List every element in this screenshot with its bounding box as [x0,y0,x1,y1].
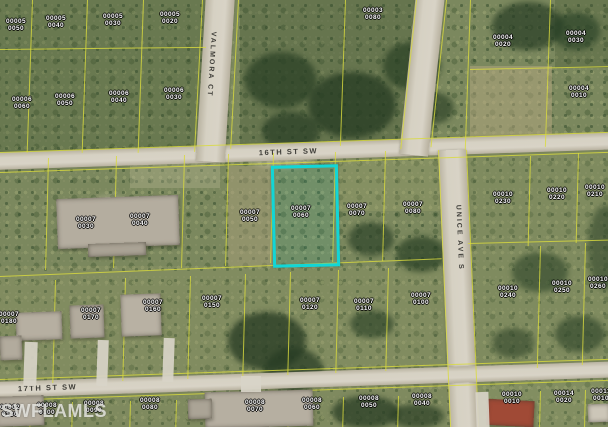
house-roof [588,404,608,423]
house-roof [0,336,22,361]
parcel-label-00014-0020: 000140020 [554,390,574,404]
parcel-label-00010-0240: 000100240 [498,285,518,299]
house-roof [88,242,146,257]
parcel-label-00007-0070: 000070070 [347,203,367,217]
parcel-label-00008-0070: 000080070 [245,399,265,413]
driveway [23,342,38,386]
parcel-label-00010-0250: 000100250 [552,280,572,294]
driveway [475,392,489,427]
parcel-label-00010-0220: 000100220 [547,187,567,201]
parcel-label-00006-0060: 000060060 [12,96,32,110]
parcel-label-00005-0040: 000050040 [46,15,66,29]
tree-cluster [245,52,317,108]
driveway [162,338,175,382]
house-roof [16,311,63,341]
parcel-label-00005-0020: 000050020 [160,11,180,25]
parcel-label-00007-0150: 000070150 [202,295,222,309]
parcel-label-00004-0010: 000040010 [569,85,589,99]
tree-cluster [555,316,605,352]
parcel-label-00008-0040: 000080040 [412,393,432,407]
parcel-label-00007-0040: 000070040 [130,213,150,227]
street-label-valmora-ct: VALMORA CT [206,31,217,97]
parcel-label-00007-0060: 000070060 [291,205,311,219]
driveway [241,376,261,392]
parcel-label-00006-0030: 000060030 [164,87,184,101]
parcel-label-00003-0080: 000030080 [363,7,383,21]
parcel-label-00007-0160: 000070160 [143,299,163,313]
parcel-label-00007-0030: 000070030 [76,216,96,230]
parcel-line [45,158,49,270]
parcel-label-00004-0030: 000040030 [566,30,586,44]
parcel-label-00010-0230: 000100230 [493,191,513,205]
map-canvas[interactable]: 16TH ST SW VALMORA CT UNICE AVE S 17TH S… [0,0,608,427]
parcel-label-00007-0100: 000070100 [411,292,431,306]
parcel-label-00006-0040: 000060040 [109,90,129,104]
watermark: SWFLAMLS [1,401,107,422]
parcel-label-00007-0080: 000070080 [403,201,423,215]
street-label-16th-st-sw: 16TH ST SW [259,145,318,156]
parcel-label-00010-0010: 000100010 [502,391,522,405]
parcel-label-00010-0210: 000100210 [585,184,605,198]
parcel-label-00008-0060: 000080060 [302,397,322,411]
parcel-label-00007-0110: 000070110 [354,298,374,312]
house-roof [56,195,180,249]
parcel-label-00004-0020: 000040020 [493,34,513,48]
tree-cluster [308,72,396,138]
parcel-label-00008-0080: 000080080 [140,397,160,411]
tree-cluster [396,236,446,272]
parcel-label-00005-0050: 000050050 [6,18,26,32]
tree-cluster [492,328,534,358]
parcel-label-00011-0010: 000110010 [591,388,608,402]
parcel-label-00007-0170: 000070170 [81,307,101,321]
house-roof [188,399,213,420]
parcel-label-00006-0050: 000060050 [55,93,75,107]
parcel-label-00007-0180: 000070180 [0,311,19,325]
parcel-label-00008-0050: 000080050 [359,395,379,409]
parcel-label-00005-0030: 000050030 [103,13,123,27]
driveway [96,340,109,386]
parcel-label-00010-0260: 000100260 [588,276,608,290]
tree-cluster [348,222,394,256]
street-label-unice-ave-s: UNICE AVE S [454,205,464,271]
parcel-label-00007-0050: 000070050 [240,209,260,223]
parcel-label-00007-0120: 000070120 [300,297,320,311]
